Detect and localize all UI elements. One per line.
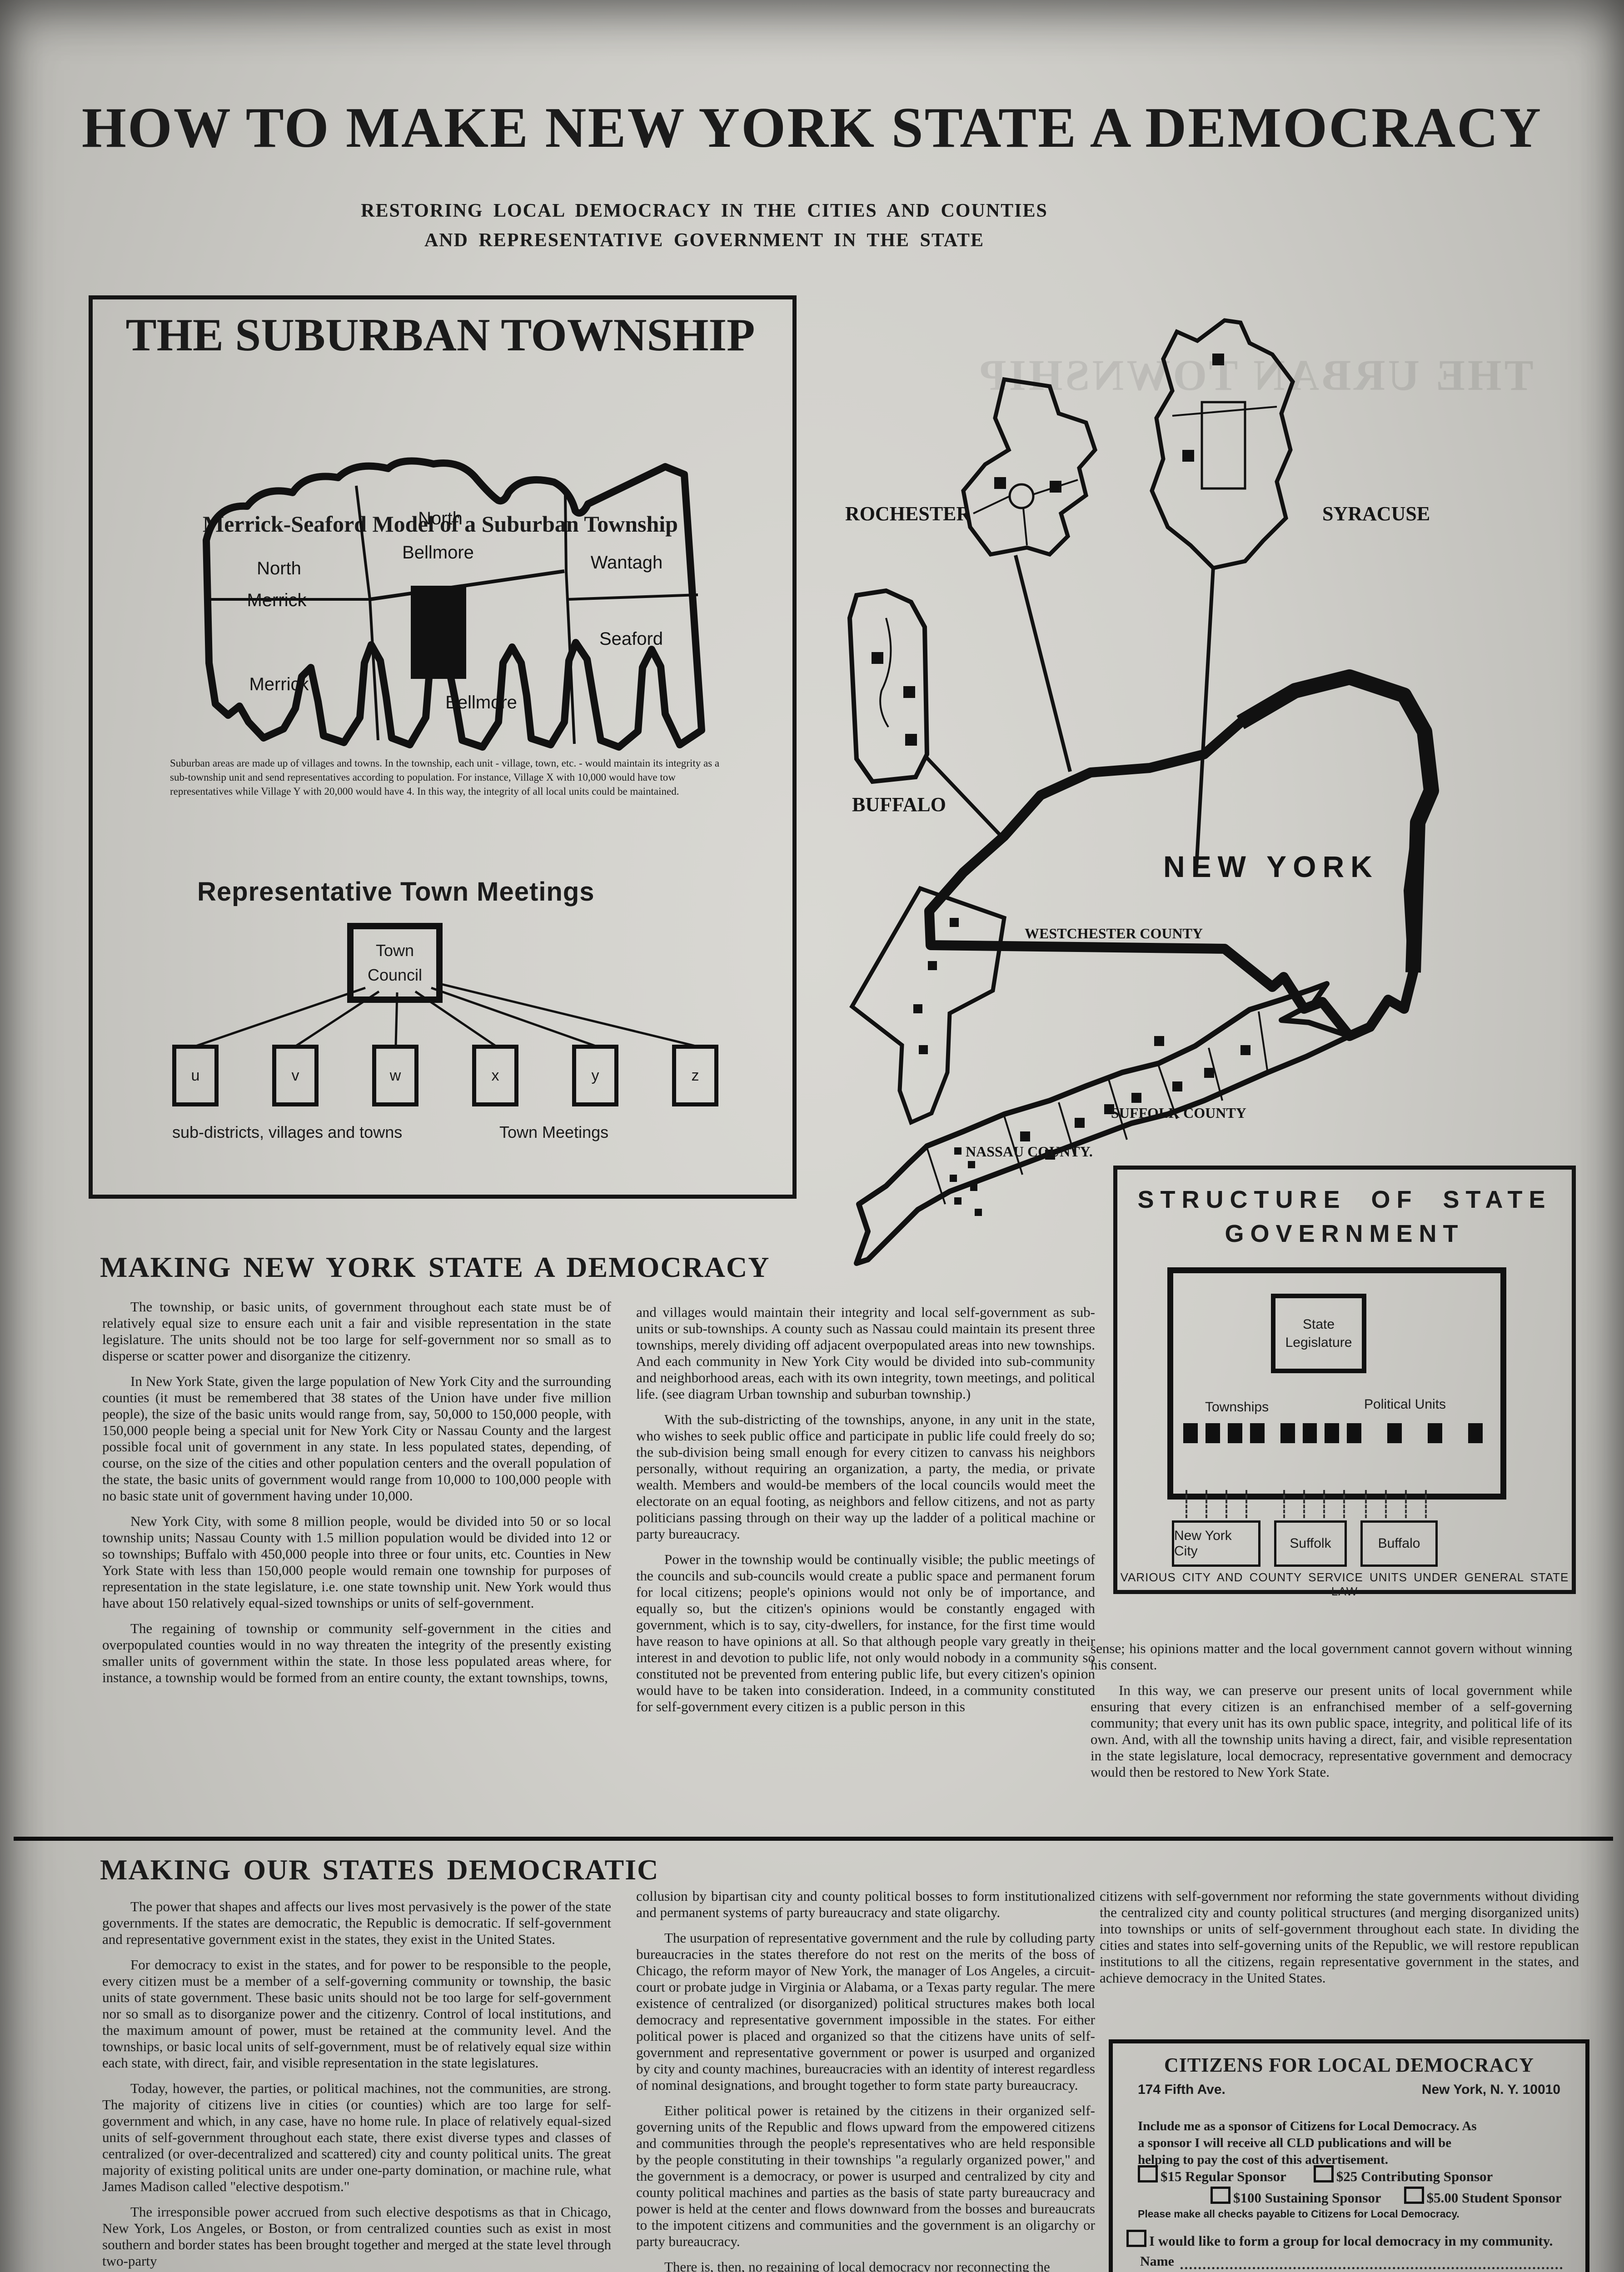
map-caption: Suburban areas are made up of villages a…	[170, 756, 722, 798]
buffalo-inset	[850, 591, 927, 782]
paragraph: Today, however, the parties, or politica…	[102, 2080, 611, 2195]
town-council-label-2: Council	[368, 963, 422, 987]
unit-box-y: y	[572, 1045, 618, 1106]
coupon-street-address: 174 Fifth Ave.	[1138, 2082, 1225, 2098]
region-label-seaford: Seaford	[599, 629, 663, 649]
paragraph: sense; his opinions matter and the local…	[1091, 1640, 1572, 1673]
option-student-label: $5.00 Student Sponsor	[1427, 2190, 1562, 2206]
paragraph: Either political power is retained by th…	[636, 2103, 1095, 2250]
townships-label: Townships	[1205, 1400, 1269, 1415]
option-student-sponsor[interactable]: $5.00 Student Sponsor	[1404, 2187, 1562, 2206]
coupon-city-address: New York, N. Y. 10010	[1422, 2082, 1560, 2098]
region-label-north-bellmore-1: North	[418, 508, 463, 528]
nyc-box-label: New York City	[1174, 1528, 1258, 1559]
name-field-row: Name	[1140, 2253, 1563, 2269]
option-regular-label: $15 Regular Sponsor	[1161, 2168, 1286, 2184]
paragraph: and villages would maintain their integr…	[636, 1304, 1095, 1402]
name-field-label: Name	[1140, 2254, 1174, 2269]
unit-box-x: x	[472, 1045, 518, 1106]
unit-label-u: u	[191, 1067, 200, 1085]
nys-column-1: The township, or basic units, of governm…	[102, 1299, 611, 1695]
name-field-line[interactable]	[1181, 2253, 1563, 2269]
political-units-label: Political Units	[1364, 1397, 1446, 1412]
sponsor-options-row-1: $15 Regular Sponsor $25 Contributing Spo…	[1138, 2165, 1574, 2185]
checkbox-sustaining-icon[interactable]	[1211, 2187, 1230, 2204]
town-council-box: Town Council	[347, 923, 443, 1003]
paragraph: citizens with self-government nor reform…	[1100, 1888, 1579, 1986]
nassau-label: NASSAU COUNTY.	[966, 1143, 1093, 1160]
group-option-label: I would like to form a group for local d…	[1149, 2233, 1553, 2249]
page-title: HOW TO MAKE NEW YORK STATE A DEMOCRACY	[27, 95, 1597, 161]
option-sustaining-sponsor[interactable]: $100 Sustaining Sponsor	[1211, 2187, 1381, 2206]
paragraph: There is, then, no regaining of local de…	[636, 2259, 1095, 2272]
nys-column-2: and villages would maintain their integr…	[636, 1304, 1095, 1724]
paragraph: The township, or basic units, of governm…	[102, 1299, 611, 1364]
coupon-address-row: 174 Fifth Ave. New York, N. Y. 10010	[1138, 2082, 1560, 2098]
states-column-2: collusion by bipartisan city and county …	[636, 1888, 1095, 2272]
region-label-north-merrick-1: North	[257, 558, 301, 578]
region-label-north-bellmore-2: Bellmore	[402, 543, 474, 563]
structure-caption: VARIOUS CITY AND COUNTY SERVICE UNITS UN…	[1117, 1570, 1572, 1599]
westchester-label: WESTCHESTER COUNTY	[1025, 925, 1203, 942]
nys-column-3: sense; his opinions matter and the local…	[1091, 1640, 1572, 1789]
option-sustaining-label: $100 Sustaining Sponsor	[1233, 2190, 1381, 2206]
suffolk-label: SUFFOLK COUNTY	[1111, 1105, 1246, 1121]
unit-label-w: w	[390, 1067, 401, 1085]
unit-label-x: x	[492, 1067, 499, 1085]
new-york-label: NEW YORK	[1163, 850, 1379, 883]
checkbox-contributing-icon[interactable]	[1314, 2165, 1334, 2182]
option-contributing-label: $25 Contributing Sponsor	[1336, 2168, 1493, 2184]
diagram-caption-right: Town Meetings	[499, 1123, 608, 1142]
section-divider-rule	[14, 1837, 1613, 1841]
unit-label-y: y	[592, 1067, 599, 1085]
newspaper-page: THE URBAN TOWNSHIP HOW TO MAKE NEW YORK …	[0, 0, 1624, 2272]
checks-payable-note: Please make all checks payable to Citize…	[1138, 2208, 1560, 2220]
diagram-connector-lines	[93, 920, 792, 1051]
dashed-links-suffolk	[1283, 1490, 1345, 1518]
dashed-links-buffalo	[1365, 1490, 1427, 1518]
paragraph: In this way, we can preserve our present…	[1091, 1682, 1572, 1780]
checkbox-regular-icon[interactable]	[1138, 2165, 1158, 2182]
nyc-box: New York City	[1172, 1520, 1260, 1567]
paragraph: The power that shapes and affects our li…	[102, 1898, 611, 1948]
page-subtitle-2: AND REPRESENTATIVE GOVERNMENT IN THE STA…	[136, 229, 1272, 251]
unit-label-z: z	[692, 1067, 699, 1085]
buffalo-box: Buffalo	[1360, 1520, 1438, 1567]
merrick-seaford-map: North Merrick North Bellmore Wantagh Mer…	[143, 449, 742, 758]
paragraph: collusion by bipartisan city and county …	[636, 1888, 1095, 1921]
coupon-intro: Include me as a sponsor of Citizens for …	[1138, 2118, 1483, 2168]
suffolk-box: Suffolk	[1274, 1520, 1347, 1567]
region-label-north-merrick-2: Merrick	[247, 590, 307, 610]
structure-of-state-government-panel: STRUCTURE OF STATE GOVERNMENT State Legi…	[1113, 1166, 1576, 1594]
unit-box-w: w	[372, 1045, 418, 1106]
structure-title-2: GOVERNMENT	[1117, 1220, 1572, 1248]
town-council-label-1: Town	[376, 938, 414, 963]
diagram-caption-left: sub-districts, villages and towns	[172, 1123, 402, 1142]
sponsor-options-row-2: $100 Sustaining Sponsor $5.00 Student Sp…	[1211, 2187, 1583, 2206]
buffalo-label: BUFFALO	[852, 793, 946, 816]
paragraph: New York City, with some 8 million peopl…	[102, 1513, 611, 1611]
section-heading-making-nys: MAKING NEW YORK STATE A DEMOCRACY	[100, 1251, 770, 1284]
state-legislature-label-1: State	[1303, 1315, 1335, 1334]
syracuse-inset	[1152, 320, 1293, 568]
state-legislature-label-2: Legislature	[1285, 1334, 1352, 1352]
buffalo-box-label: Buffalo	[1378, 1536, 1420, 1551]
region-label-merrick: Merrick	[249, 674, 309, 694]
township-squares-row	[1183, 1423, 1490, 1443]
paragraph: With the sub-districting of the township…	[636, 1411, 1095, 1542]
states-column-1: The power that shapes and affects our li…	[102, 1898, 611, 2272]
rochester-inset	[963, 379, 1095, 554]
page-subtitle-1: RESTORING LOCAL DEMOCRACY IN THE CITIES …	[136, 200, 1272, 222]
paragraph: The irresponsible power accrued from suc…	[102, 2204, 611, 2269]
region-label-wantagh: Wantagh	[591, 553, 663, 573]
unit-box-u: u	[172, 1045, 219, 1106]
states-column-3: citizens with self-government nor reform…	[1100, 1888, 1579, 1995]
bellmore-filled-unit	[411, 586, 466, 679]
state-frame: State Legislature Townships Political Un…	[1167, 1267, 1506, 1500]
town-meetings-diagram-title: Representative Town Meetings	[197, 877, 595, 907]
paragraph: For democracy to exist in the states, an…	[102, 1957, 611, 2071]
paragraph: Power in the township would be continual…	[636, 1551, 1095, 1715]
checkbox-group-icon[interactable]	[1126, 2230, 1146, 2247]
dashed-links-nyc	[1186, 1490, 1247, 1518]
form-group-option[interactable]: I would like to form a group for local d…	[1126, 2230, 1572, 2249]
sponsorship-coupon: CITIZENS FOR LOCAL DEMOCRACY 174 Fifth A…	[1109, 2039, 1589, 2272]
suburban-panel-title: THE SUBURBAN TOWNSHIP	[97, 309, 783, 362]
state-legislature-box: State Legislature	[1271, 1294, 1366, 1373]
option-regular-sponsor[interactable]: $15 Regular Sponsor	[1138, 2165, 1286, 2185]
checkbox-student-icon[interactable]	[1404, 2187, 1424, 2204]
region-label-bellmore: Bellmore	[445, 693, 517, 712]
coupon-title: CITIZENS FOR LOCAL DEMOCRACY	[1113, 2053, 1585, 2077]
syracuse-label: SYRACUSE	[1322, 503, 1430, 525]
paragraph: The regaining of township or community s…	[102, 1620, 611, 1686]
unit-box-z: z	[672, 1045, 718, 1106]
rochester-label: ROCHESTER	[845, 503, 971, 525]
paragraph: In New York State, given the large popul…	[102, 1373, 611, 1504]
section-heading-making-states: MAKING OUR STATES DEMOCRATIC	[100, 1853, 659, 1887]
paragraph: The usurpation of representative governm…	[636, 1930, 1095, 2093]
suburban-township-panel: THE SUBURBAN TOWNSHIP Merrick-Seaford Mo…	[89, 295, 797, 1199]
suffolk-box-label: Suffolk	[1290, 1536, 1331, 1551]
unit-box-v: v	[272, 1045, 319, 1106]
option-contributing-sponsor[interactable]: $25 Contributing Sponsor	[1314, 2165, 1493, 2185]
unit-label-v: v	[292, 1067, 299, 1085]
structure-title-1: STRUCTURE OF STATE	[1117, 1186, 1572, 1214]
